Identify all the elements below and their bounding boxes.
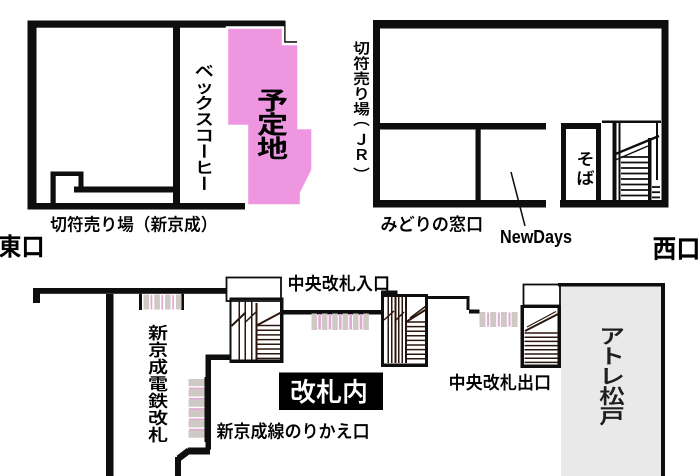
- svg-text:NewDays: NewDays: [500, 227, 572, 247]
